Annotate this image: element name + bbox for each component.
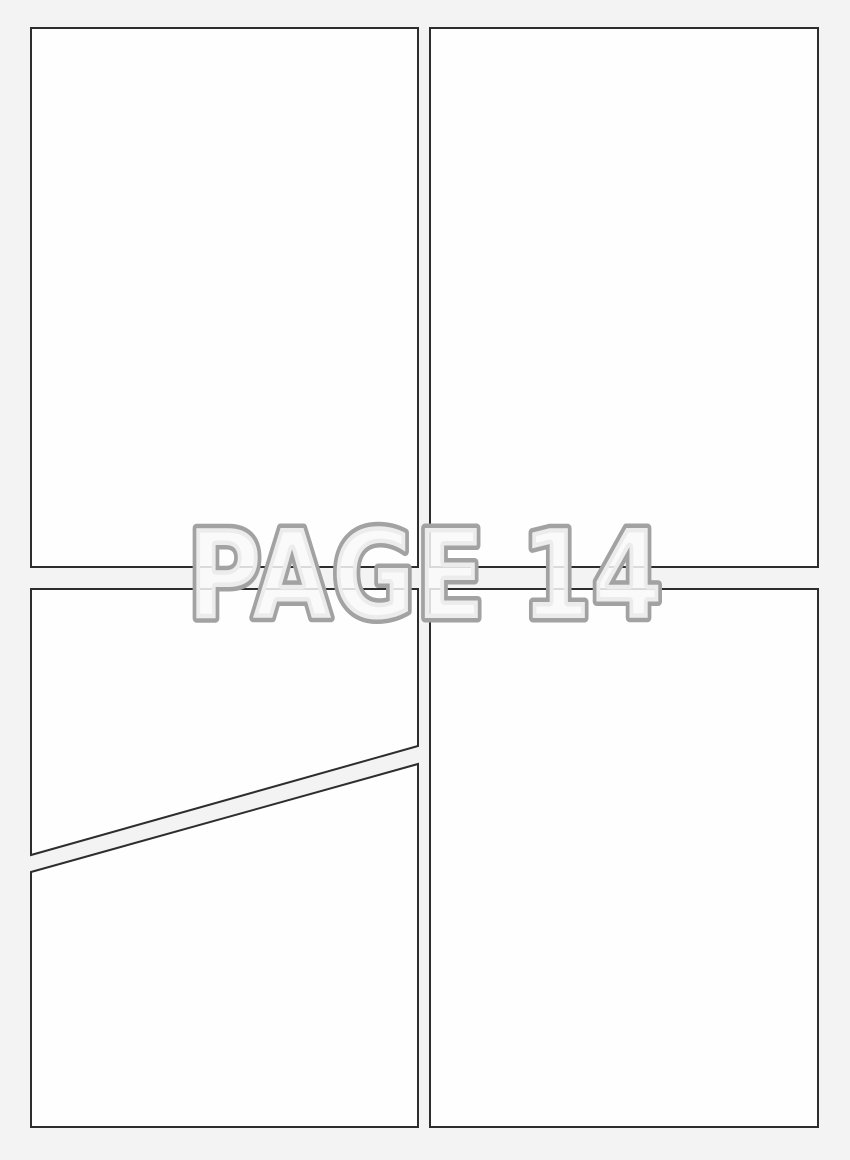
panel-top-right bbox=[430, 28, 818, 567]
comic-page-canvas: PAGE 14 PAGE 14 bbox=[0, 0, 850, 1160]
page-number-watermark-fill: PAGE 14 bbox=[187, 505, 663, 648]
comic-page-template: { "watermark": { "text": "PAGE 14", "fon… bbox=[0, 0, 850, 1160]
page-number-watermark: PAGE 14 PAGE 14 bbox=[187, 505, 663, 648]
panel-top-left bbox=[31, 28, 418, 567]
panel-bottom-right bbox=[430, 589, 818, 1127]
